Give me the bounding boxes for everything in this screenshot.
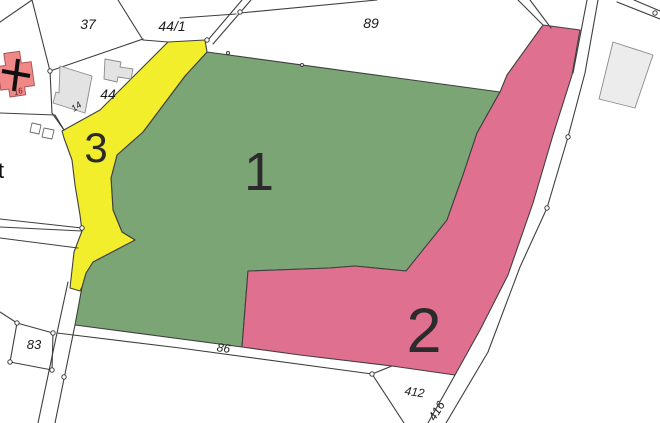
survey-point-marker xyxy=(545,206,549,210)
parcel-number-label: 86 xyxy=(216,340,231,356)
region-2-label: 2 xyxy=(406,296,441,366)
survey-point-marker xyxy=(653,11,657,15)
survey-point-marker xyxy=(15,321,19,325)
survey-point-marker xyxy=(301,64,304,67)
shed-a xyxy=(30,123,41,134)
survey-point-marker xyxy=(50,368,54,372)
parcel-number-label: t xyxy=(0,158,4,183)
parcel-number-label: 44 xyxy=(100,86,116,102)
survey-point-marker xyxy=(227,52,230,55)
survey-point-marker xyxy=(8,360,12,364)
parcel-number-label: 37 xyxy=(80,16,97,32)
survey-point-marker xyxy=(205,38,209,42)
shed-b xyxy=(42,128,54,139)
map-viewport: 3744/1894414168386412416t123 xyxy=(0,0,660,423)
survey-point-marker xyxy=(238,10,242,14)
survey-point-marker xyxy=(80,226,84,230)
parcel-number-label: 44/1 xyxy=(158,18,185,34)
survey-point-marker xyxy=(62,375,66,379)
survey-point-marker xyxy=(370,372,374,376)
survey-point-marker xyxy=(51,331,55,335)
parcel-number-label: 83 xyxy=(27,337,42,352)
survey-point-marker xyxy=(48,69,52,73)
parcel-number-label: 89 xyxy=(363,15,379,31)
cadastral-map-canvas[interactable]: 3744/1894414168386412416t123 xyxy=(0,0,660,423)
survey-point-marker xyxy=(566,135,570,139)
parcel-number-label: 412 xyxy=(404,384,426,401)
region-3-label: 3 xyxy=(84,124,107,171)
region-1-label: 1 xyxy=(244,142,274,202)
